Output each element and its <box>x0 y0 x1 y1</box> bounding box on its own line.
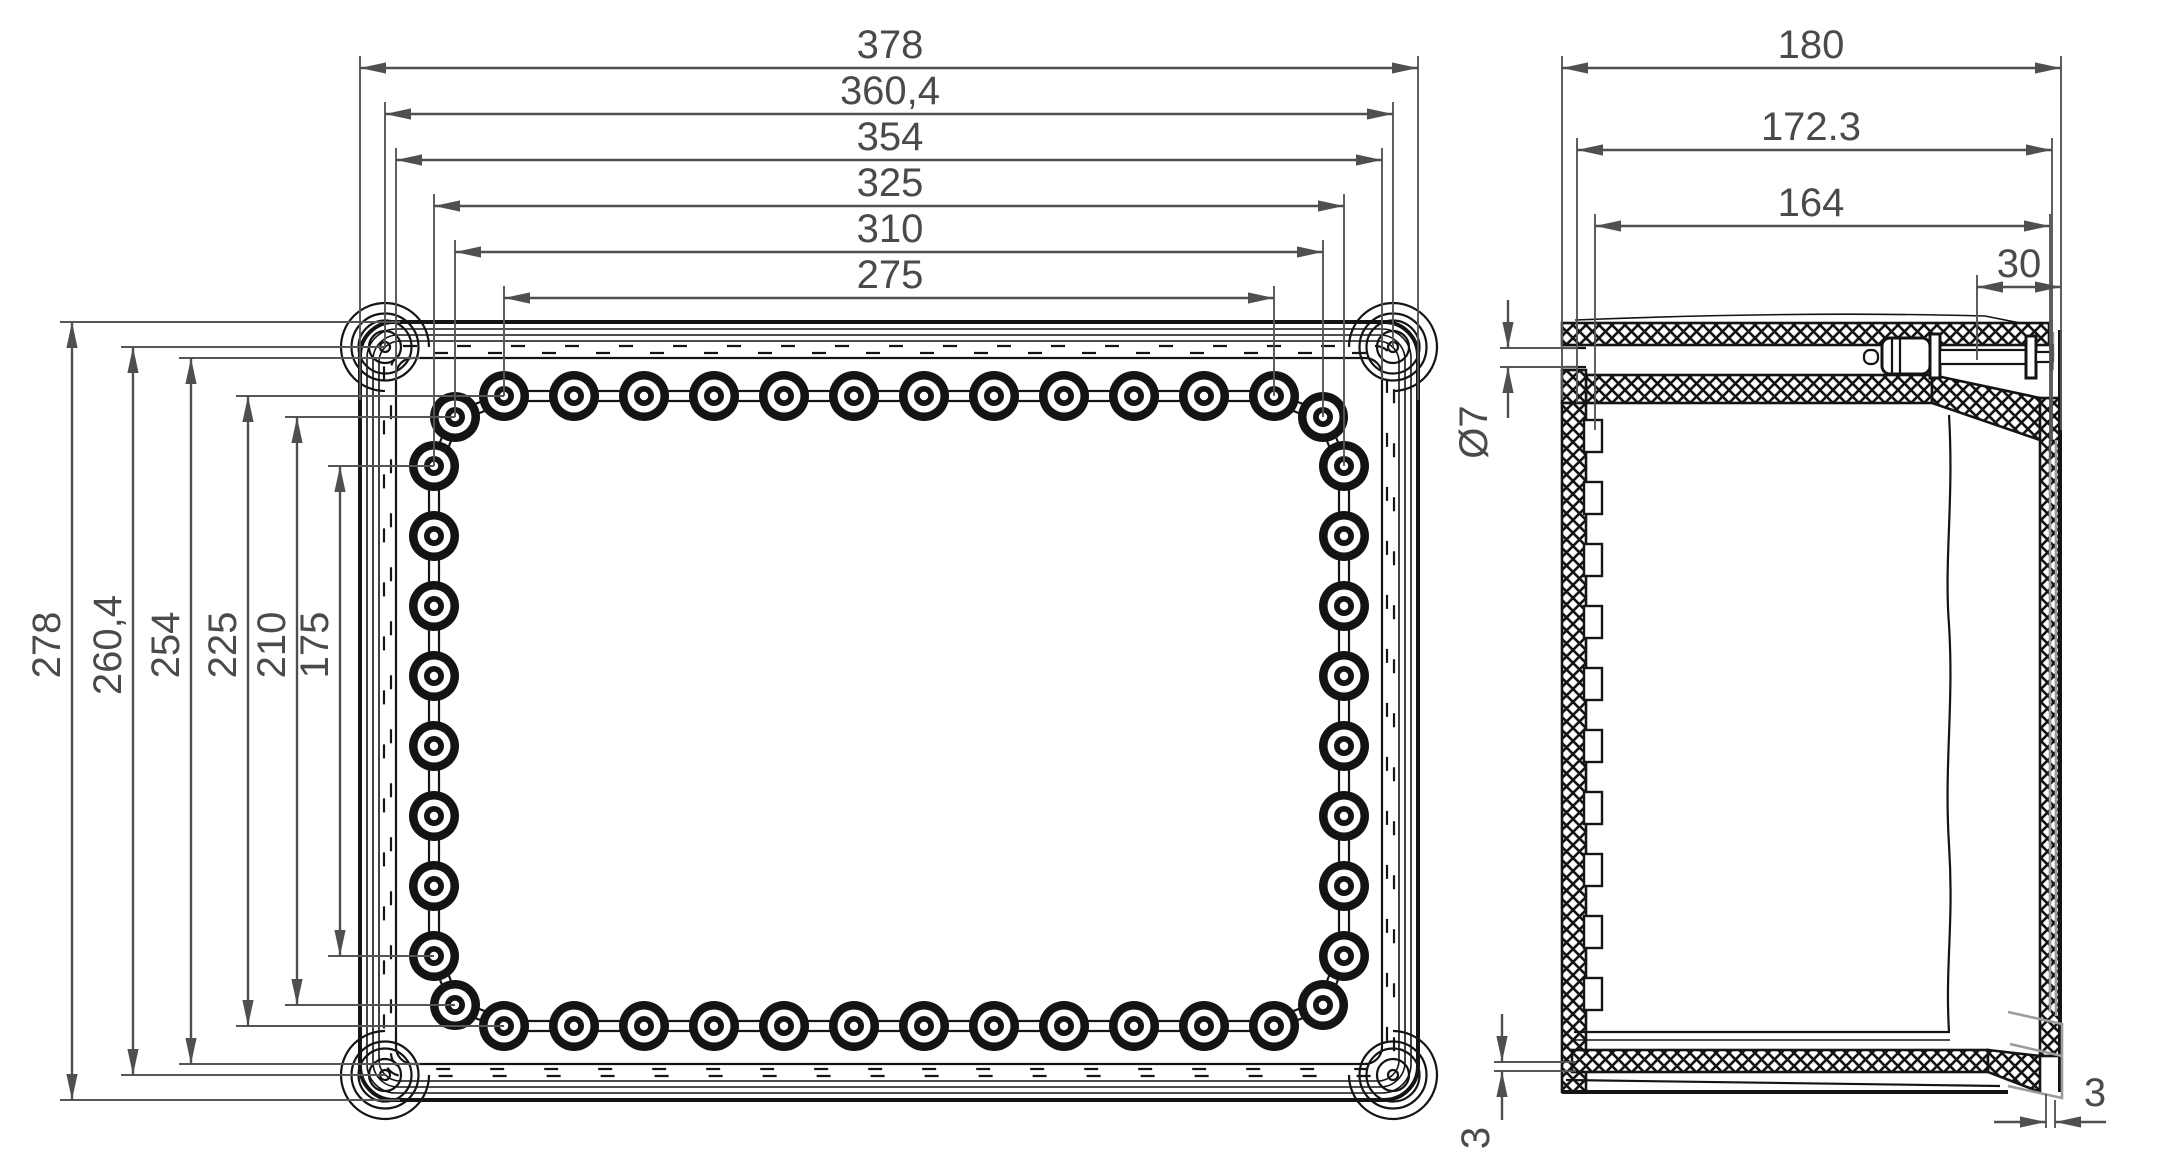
wall-rib-notch <box>1584 978 1602 1010</box>
mounting-boss-donut <box>829 371 879 421</box>
mounting-boss-donut <box>409 511 459 561</box>
mounting-boss-donut <box>409 581 459 631</box>
mounting-boss-donut <box>829 1001 879 1051</box>
mounting-boss-donut <box>1319 511 1369 561</box>
dim-label-360-4: 360,4 <box>840 69 940 113</box>
wall-rib-notch <box>1584 916 1602 948</box>
mounting-boss-donut <box>409 861 459 911</box>
interior-lines <box>1574 415 1951 1040</box>
mounting-boss-donut <box>689 371 739 421</box>
mounting-donut-grid <box>409 371 1369 1051</box>
mounting-boss-donut <box>969 371 1019 421</box>
corner-boss-taper <box>1932 375 2040 440</box>
mounting-boss-donut <box>1109 1001 1159 1051</box>
boss-arcs <box>341 303 1437 1119</box>
mounting-boss-donut <box>759 371 809 421</box>
mounting-boss-donut <box>1179 371 1229 421</box>
mounting-boss-donut <box>409 651 459 701</box>
dim-label-378: 378 <box>857 23 924 67</box>
bottom-outline <box>1562 1080 2008 1092</box>
lid-flange-section <box>1586 375 1932 403</box>
dim-label-210: 210 <box>250 612 294 679</box>
dim-210: 210 <box>250 417 455 1005</box>
side-view: 180 172.3 164 30 Ø7 <box>1452 23 2106 1149</box>
dim-label-260-4: 260,4 <box>86 595 130 695</box>
dim-225: 225 <box>201 396 504 1026</box>
mounting-boss-donut <box>899 371 949 421</box>
wall-rib-notch <box>1584 792 1602 824</box>
mounting-boss-donut <box>619 1001 669 1051</box>
dim-label-254: 254 <box>144 612 188 679</box>
floor-section <box>1572 1050 1988 1072</box>
mounting-boss-donut <box>1039 1001 1089 1051</box>
wall-rib-notch <box>1584 606 1602 638</box>
dim-label-gap-3: 3 <box>2084 1071 2106 1115</box>
wall-rib-notch <box>1584 668 1602 700</box>
dim-label-172-3: 172.3 <box>1761 105 1861 149</box>
mounting-boss-donut <box>1109 371 1159 421</box>
side-dims: 180 172.3 164 30 Ø7 <box>1452 23 2106 1149</box>
notch-band-outer <box>384 346 1394 1076</box>
dim-label-175: 175 <box>293 612 337 679</box>
dim-label-310: 310 <box>857 207 924 251</box>
mounting-boss-donut <box>1319 581 1369 631</box>
technical-drawing-canvas: 378 360,4 354 325 310 <box>0 0 2160 1175</box>
drawing-sheet: 378 360,4 354 325 310 <box>0 0 2160 1175</box>
dim-label-180: 180 <box>1778 23 1845 67</box>
mounting-boss-donut <box>409 721 459 771</box>
mounting-boss-donut <box>1319 721 1369 771</box>
mounting-boss-donut <box>1179 1001 1229 1051</box>
dim-label-325: 325 <box>857 161 924 205</box>
mounting-boss-donut <box>1319 791 1369 841</box>
plan-view: 378 360,4 354 325 310 <box>25 23 1437 1119</box>
dim-base-3-left: 3 <box>1454 1014 1576 1149</box>
plan-dims-vertical: 278 260,4 254 225 210 <box>25 322 504 1100</box>
dim-275: 275 <box>504 253 1274 396</box>
mounting-boss-donut <box>1319 931 1369 981</box>
wall-rib-notch <box>1584 482 1602 514</box>
dim-label-275: 275 <box>857 253 924 297</box>
dim-label-354: 354 <box>857 115 924 159</box>
mounting-boss-donut <box>969 1001 1019 1051</box>
wall-rib-notch <box>1584 854 1602 886</box>
mounting-boss-donut <box>409 791 459 841</box>
donut-chain-lines <box>429 391 1349 1031</box>
left-wall-section <box>1562 403 1586 1092</box>
mounting-boss-donut <box>1319 651 1369 701</box>
mounting-boss-donut <box>759 1001 809 1051</box>
dim-label-225: 225 <box>201 612 245 679</box>
lid-flange-left-cap <box>1562 370 1586 403</box>
dim-278: 278 <box>25 322 400 1100</box>
mounting-boss-donut <box>689 1001 739 1051</box>
mounting-boss-donut <box>1298 980 1348 1030</box>
dim-hole-d7: Ø7 <box>1452 300 1578 459</box>
mounting-boss-donut <box>1249 1001 1299 1051</box>
dim-label-hole-d7: Ø7 <box>1452 405 1496 458</box>
dim-label-278: 278 <box>25 612 69 679</box>
dim-label-164: 164 <box>1778 181 1845 225</box>
plan-outline <box>360 322 1418 1100</box>
wall-rib-notch <box>1584 730 1602 762</box>
mounting-boss-donut <box>549 371 599 421</box>
mounting-boss-donut <box>1319 861 1369 911</box>
lid-top-section <box>1562 323 2049 345</box>
wall-rib-notch <box>1584 544 1602 576</box>
mounting-boss-donut <box>619 371 669 421</box>
wall-rib-notch <box>1584 420 1602 452</box>
notch-band-inner <box>391 353 1387 1069</box>
mounting-boss-donut <box>899 1001 949 1051</box>
mounting-boss-donut <box>1039 371 1089 421</box>
dim-label-30: 30 <box>1997 242 2042 286</box>
dim-label-base-3: 3 <box>1454 1127 1498 1149</box>
inner-lip <box>396 358 1382 1064</box>
mounting-boss-donut <box>549 1001 599 1051</box>
